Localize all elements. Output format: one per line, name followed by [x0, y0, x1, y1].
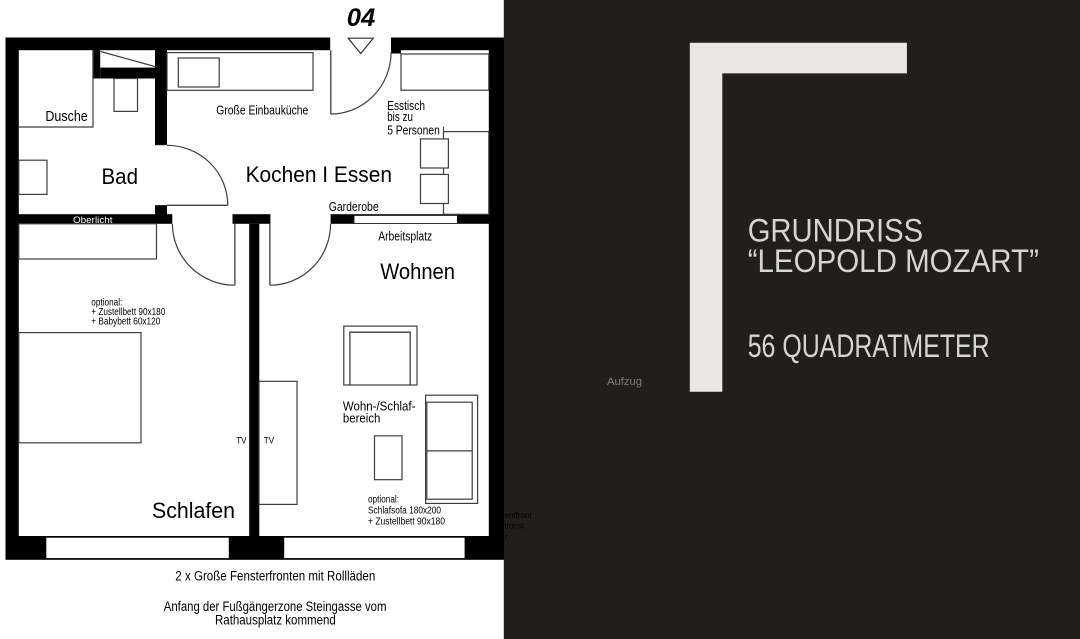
- svg-text:+ Zustellbett 90x180: + Zustellbett 90x180: [368, 517, 445, 528]
- svg-text:entfront: entfront: [505, 511, 533, 520]
- svg-text:Dusche: Dusche: [45, 108, 87, 125]
- svg-text:Arbeitsplatz: Arbeitsplatz: [378, 228, 432, 243]
- svg-text:Schlafsofa 180x200: Schlafsofa 180x200: [368, 506, 441, 517]
- svg-text:Schlafen: Schlafen: [152, 498, 235, 523]
- svg-text:Garderobe: Garderobe: [329, 199, 379, 214]
- svg-text:56 QUADRATMETER: 56 QUADRATMETER: [748, 328, 990, 364]
- svg-text:TV: TV: [264, 436, 274, 446]
- svg-text:Große Einbauküche: Große Einbauküche: [216, 102, 308, 117]
- svg-text:+ Babybett 60x120: + Babybett 60x120: [91, 317, 160, 328]
- svg-text:Kochen I Essen: Kochen I Essen: [246, 162, 392, 187]
- svg-text:r: r: [505, 532, 508, 541]
- svg-text:“LEOPOLD MOZART”: “LEOPOLD MOZART”: [748, 243, 1039, 279]
- svg-text:ttonst: ttonst: [505, 522, 525, 531]
- svg-text:Wohnen: Wohnen: [380, 259, 455, 284]
- svg-text:2 x Große Fensterfronten mit R: 2 x Große Fensterfronten mit Rollläden: [175, 569, 375, 584]
- svg-text:Aufzug: Aufzug: [607, 376, 642, 388]
- svg-text:bereich: bereich: [343, 410, 381, 425]
- svg-text:optional:: optional:: [368, 495, 399, 506]
- svg-text:5 Personen: 5 Personen: [387, 122, 440, 137]
- svg-text:04: 04: [347, 4, 376, 32]
- svg-text:Bad: Bad: [102, 164, 139, 189]
- svg-text:TV: TV: [236, 436, 246, 446]
- svg-text:Rathausplatz kommend: Rathausplatz kommend: [215, 613, 336, 628]
